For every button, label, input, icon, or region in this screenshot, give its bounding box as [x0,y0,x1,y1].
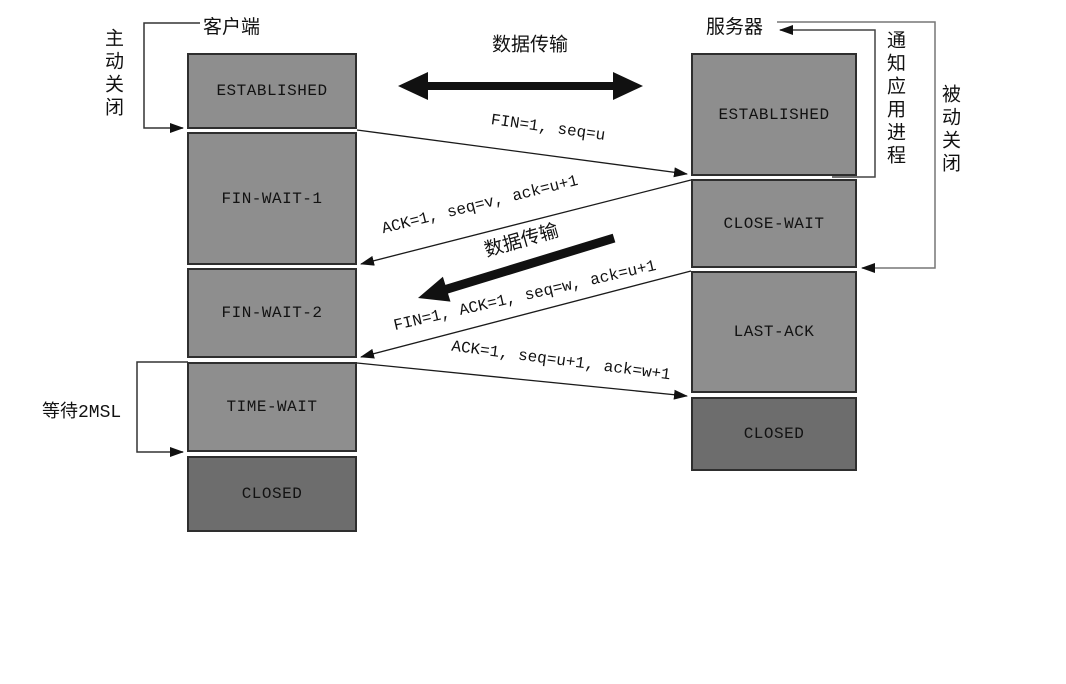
client-column-title: 客户端 [203,12,260,39]
notify-bracket-arrow [780,30,875,177]
data-transfer-double-arrow [398,72,643,100]
diagram-arrows [0,0,1066,684]
passive-close-bracket-arrow [777,22,935,268]
notify-app-process-label: 通知应用进程 [884,30,904,168]
active-close-label: 主动关闭 [102,28,122,120]
wait-2msl-label: 等待2MSL [42,397,121,423]
client-close-bracket-arrow [144,23,200,128]
server-column-title: 服务器 [706,12,763,39]
tcp-release-diagram: ESTABLISHED FIN-WAIT-1 FIN-WAIT-2 TIME-W… [0,0,1066,684]
data-transfer-top-label: 数据传输 [492,30,568,57]
fin-arrow [357,130,687,174]
passive-close-label: 被动关闭 [939,84,959,176]
time-wait-bracket-arrow [137,362,188,452]
